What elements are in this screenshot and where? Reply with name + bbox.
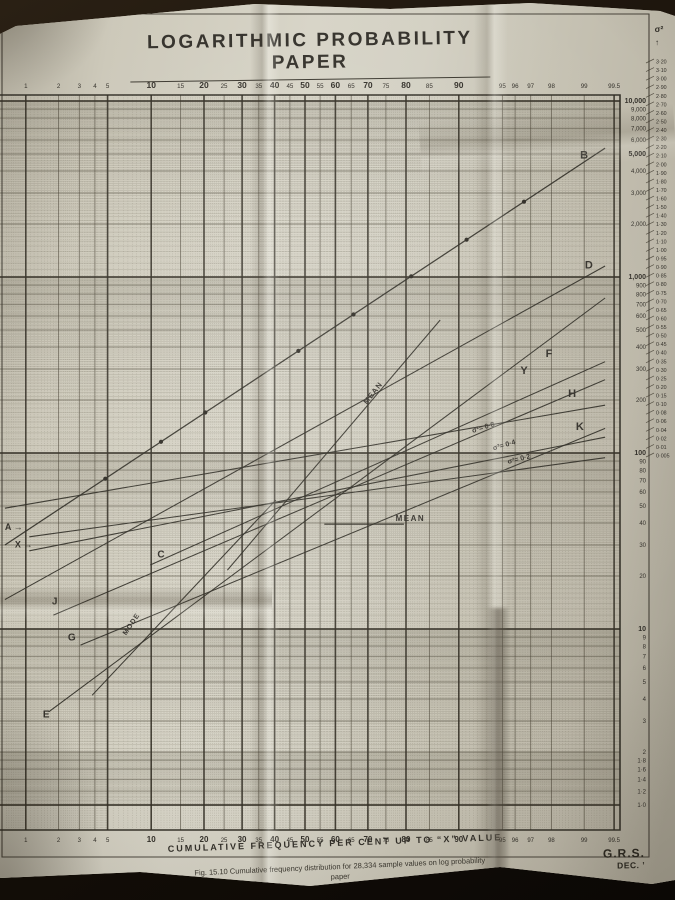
photograph-of-foldout-chart: 1234510152025303540455055606570758085909… <box>0 0 675 900</box>
photo-vignette <box>0 0 675 900</box>
foldout-page: 1234510152025303540455055606570758085909… <box>0 0 675 900</box>
